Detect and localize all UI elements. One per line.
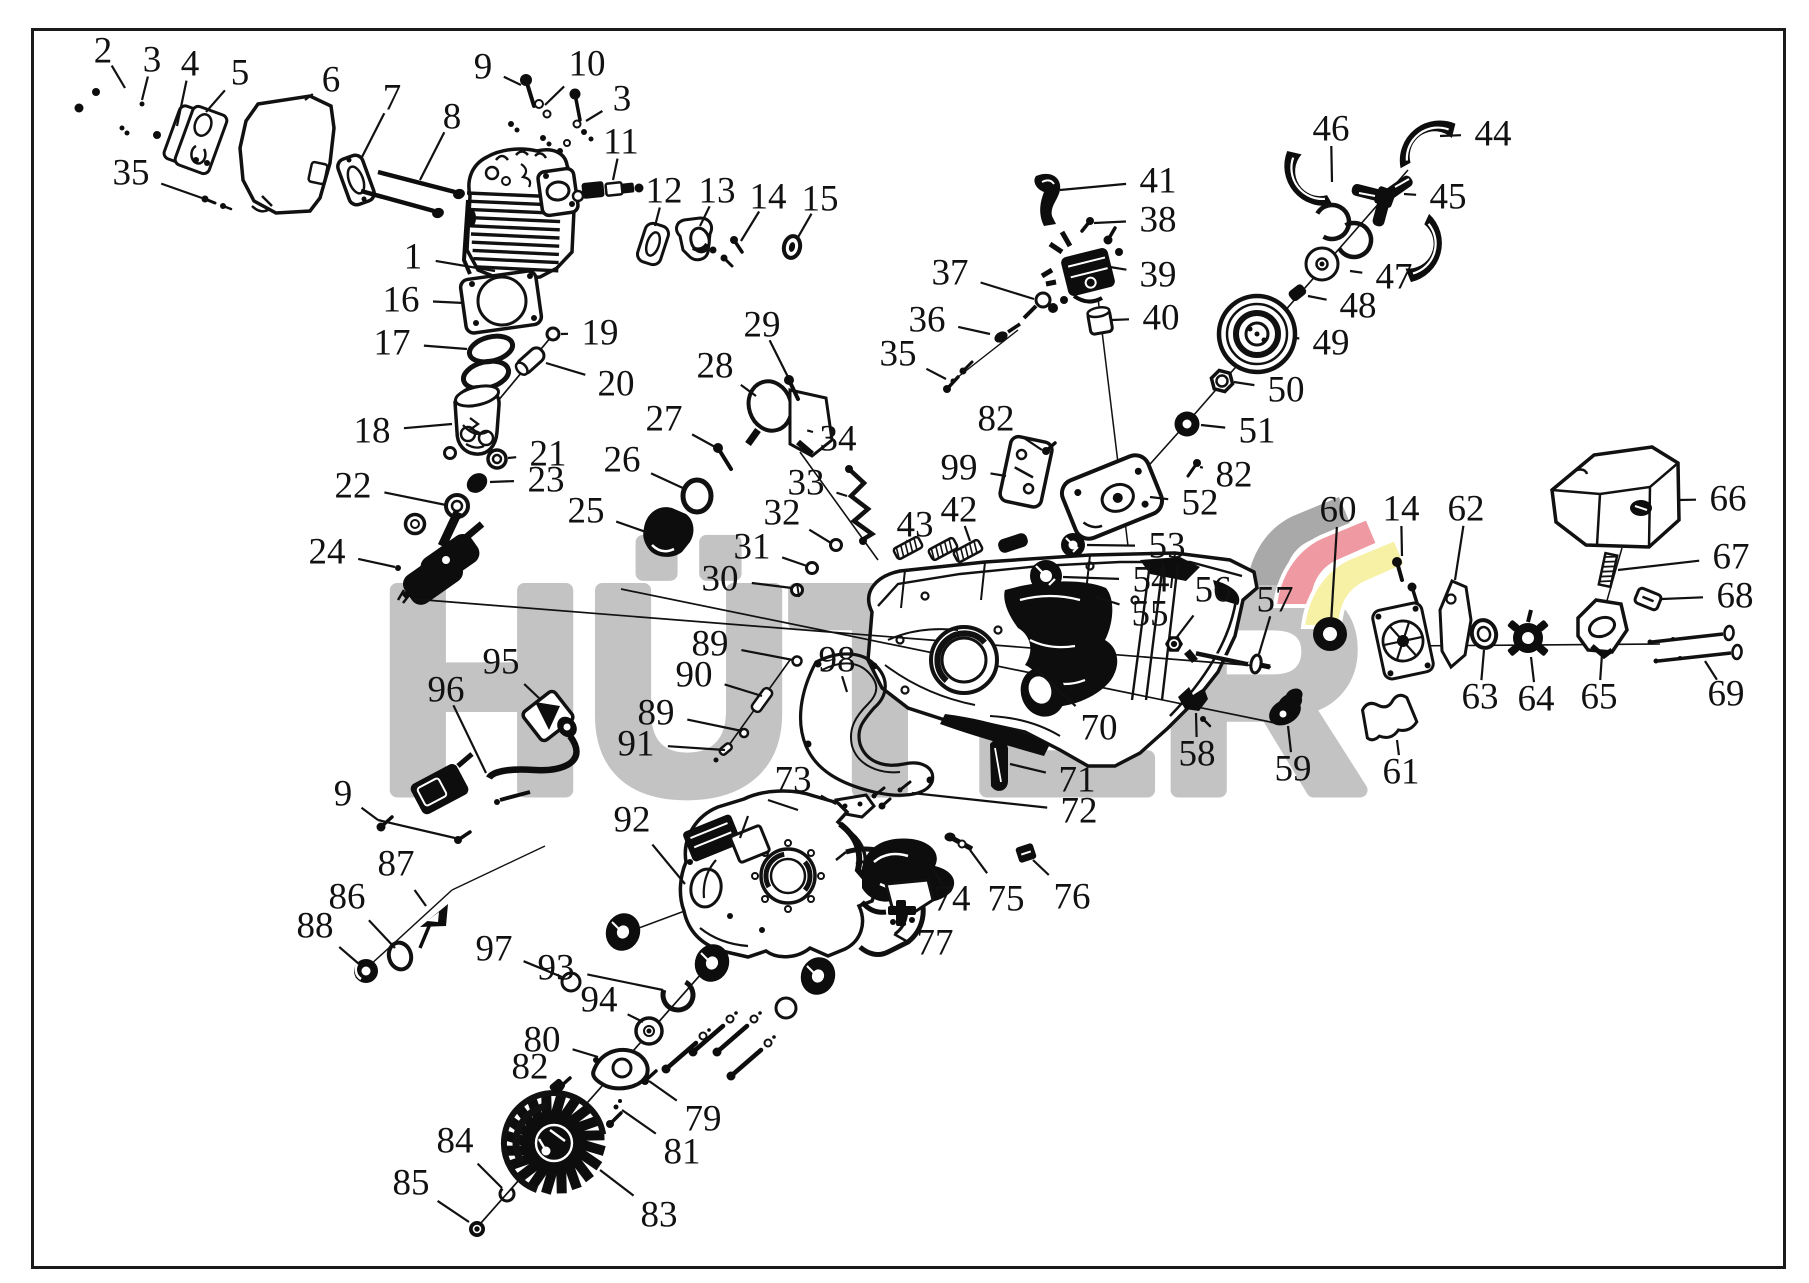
svg-text:61: 61 xyxy=(1383,752,1420,793)
svg-text:63: 63 xyxy=(1462,677,1499,718)
svg-text:23: 23 xyxy=(528,460,565,501)
svg-text:29: 29 xyxy=(744,305,781,346)
svg-text:64: 64 xyxy=(1518,679,1555,720)
svg-text:77: 77 xyxy=(917,923,954,964)
svg-text:31: 31 xyxy=(734,527,771,568)
svg-text:70: 70 xyxy=(1081,708,1118,749)
svg-text:38: 38 xyxy=(1140,200,1177,241)
svg-text:86: 86 xyxy=(329,877,366,918)
svg-text:60: 60 xyxy=(1320,490,1357,531)
svg-text:88: 88 xyxy=(297,906,334,947)
svg-text:99: 99 xyxy=(941,448,978,489)
svg-text:47: 47 xyxy=(1376,257,1413,298)
svg-text:35: 35 xyxy=(113,153,150,194)
svg-text:98: 98 xyxy=(819,640,856,681)
svg-text:26: 26 xyxy=(604,440,641,481)
svg-text:50: 50 xyxy=(1268,370,1305,411)
svg-text:20: 20 xyxy=(598,364,635,405)
svg-text:57: 57 xyxy=(1257,580,1294,621)
svg-text:82: 82 xyxy=(978,399,1015,440)
svg-text:84: 84 xyxy=(437,1121,474,1162)
svg-text:12: 12 xyxy=(646,171,683,212)
svg-text:1: 1 xyxy=(404,237,423,278)
svg-text:49: 49 xyxy=(1313,323,1350,364)
svg-text:74: 74 xyxy=(934,879,971,920)
svg-text:72: 72 xyxy=(1061,791,1098,832)
svg-text:40: 40 xyxy=(1143,298,1180,339)
svg-text:46: 46 xyxy=(1313,109,1350,150)
svg-text:73: 73 xyxy=(775,760,812,801)
svg-text:92: 92 xyxy=(614,800,651,841)
svg-text:97: 97 xyxy=(476,929,513,970)
svg-text:58: 58 xyxy=(1179,734,1216,775)
svg-text:25: 25 xyxy=(568,491,605,532)
svg-text:62: 62 xyxy=(1448,489,1485,530)
svg-text:14: 14 xyxy=(750,177,787,218)
svg-text:44: 44 xyxy=(1475,114,1512,155)
svg-text:8: 8 xyxy=(443,97,462,138)
svg-text:90: 90 xyxy=(676,655,713,696)
svg-text:94: 94 xyxy=(581,980,618,1021)
svg-text:67: 67 xyxy=(1713,537,1750,578)
svg-text:42: 42 xyxy=(941,490,978,531)
svg-text:48: 48 xyxy=(1340,286,1377,327)
svg-text:82: 82 xyxy=(512,1047,549,1088)
svg-text:59: 59 xyxy=(1275,749,1312,790)
svg-text:35: 35 xyxy=(880,334,917,375)
svg-text:22: 22 xyxy=(335,466,372,507)
svg-text:52: 52 xyxy=(1182,483,1219,524)
svg-text:2: 2 xyxy=(94,31,113,72)
svg-text:85: 85 xyxy=(393,1163,430,1204)
svg-text:19: 19 xyxy=(582,313,619,354)
svg-text:75: 75 xyxy=(988,879,1025,920)
svg-text:17: 17 xyxy=(374,323,411,364)
svg-text:87: 87 xyxy=(378,844,415,885)
svg-text:7: 7 xyxy=(383,78,402,119)
svg-text:95: 95 xyxy=(483,642,520,683)
svg-text:82: 82 xyxy=(1216,455,1253,496)
svg-text:11: 11 xyxy=(603,122,639,163)
svg-text:68: 68 xyxy=(1717,576,1754,617)
svg-text:83: 83 xyxy=(641,1195,678,1236)
svg-text:96: 96 xyxy=(428,670,465,711)
svg-text:24: 24 xyxy=(309,532,346,573)
svg-text:27: 27 xyxy=(646,399,683,440)
svg-text:13: 13 xyxy=(699,171,736,212)
svg-text:10: 10 xyxy=(569,44,606,85)
svg-text:91: 91 xyxy=(618,724,655,765)
svg-text:76: 76 xyxy=(1054,877,1091,918)
svg-text:45: 45 xyxy=(1430,177,1467,218)
svg-text:14: 14 xyxy=(1383,489,1420,530)
svg-text:43: 43 xyxy=(897,505,934,546)
svg-text:18: 18 xyxy=(354,411,391,452)
svg-text:9: 9 xyxy=(474,47,493,88)
svg-text:55: 55 xyxy=(1132,594,1169,635)
svg-text:66: 66 xyxy=(1710,479,1747,520)
svg-text:4: 4 xyxy=(181,44,200,85)
svg-text:41: 41 xyxy=(1140,161,1177,202)
svg-text:34: 34 xyxy=(820,419,857,460)
svg-text:93: 93 xyxy=(538,948,575,989)
svg-text:65: 65 xyxy=(1581,677,1618,718)
svg-text:28: 28 xyxy=(697,346,734,387)
svg-text:3: 3 xyxy=(143,40,162,81)
svg-text:81: 81 xyxy=(664,1132,701,1173)
svg-text:3: 3 xyxy=(613,79,632,120)
svg-text:15: 15 xyxy=(802,179,839,220)
svg-text:9: 9 xyxy=(334,774,353,815)
svg-text:30: 30 xyxy=(702,559,739,600)
svg-text:56: 56 xyxy=(1195,570,1232,611)
svg-text:51: 51 xyxy=(1239,411,1276,452)
svg-text:16: 16 xyxy=(383,280,420,321)
svg-text:39: 39 xyxy=(1140,255,1177,296)
svg-text:69: 69 xyxy=(1708,674,1745,715)
svg-text:5: 5 xyxy=(231,53,250,94)
svg-text:6: 6 xyxy=(322,60,341,101)
svg-text:37: 37 xyxy=(932,253,969,294)
